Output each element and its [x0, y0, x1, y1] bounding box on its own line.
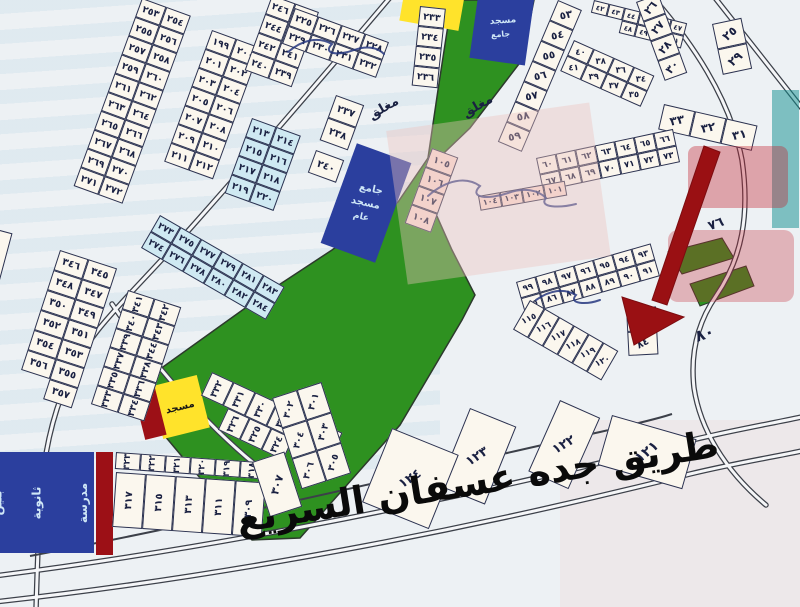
plot-strip-115-120: ١١٥١١٦١١٧١١٨١١٩١٢٠	[513, 300, 618, 380]
mosque-block-top: مسجدجامع	[469, 0, 534, 66]
block-text: بنين	[0, 490, 4, 515]
plot-strip-34-41: ٤٠٣٨٣٦٣٤٤١٣٩٣٧٣٥	[560, 40, 654, 107]
plot-strip-253-272: ٢٥٣٢٥٤٢٥٥٢٥٦٢٥٧٢٥٨٢٥٩٢٦٠٢٦١٢٦٢٢٦٣٢٦٤٢٦٥٢…	[74, 0, 191, 204]
watermark-pink-band	[386, 102, 611, 284]
plot-240: ٢٤٠	[308, 150, 344, 183]
plot-cell: ٢٣٦	[412, 66, 440, 89]
closed-street-label: مغلق	[366, 94, 402, 123]
block-text: ثانوية	[29, 486, 43, 519]
plot-cell: ٣٢٣	[115, 452, 141, 471]
plot-strip-304-306: ٣٠٤٣٠٦	[0, 222, 13, 334]
watermark-red-mark	[668, 230, 794, 302]
watermark-red-mark	[688, 146, 788, 208]
plot-map: طريق جده عسفان السريع ٢٥٣٢٥٤٢٥٥٢٥٦٢٥٧٢٥٨…	[0, 0, 800, 607]
plot-cell: ٢٩	[717, 43, 752, 75]
block-text: مسجد	[489, 15, 516, 27]
plot-cell: ٣٢٠	[190, 457, 216, 476]
block-text: جامع	[358, 181, 384, 197]
plot-cell: ٣١٩	[215, 459, 241, 478]
plot-cell: ٩١	[636, 260, 660, 282]
block-text: مدرسة	[76, 482, 90, 522]
plot-cell: ٢٣٣	[418, 6, 446, 29]
plot-cell: ٣١١	[202, 478, 236, 535]
plot-cell: ٨٤	[627, 330, 658, 356]
plot-cell: ٢٣٤	[416, 26, 444, 49]
mosque-block-top-label: مسجدجامع	[487, 14, 516, 40]
mosque-block-park-label: جامعمسجدعام	[345, 179, 386, 227]
plot-cell: ٣١٣	[172, 476, 206, 533]
plot-strip-83-84: ٨٣٨٤	[626, 306, 658, 356]
school-block-label: مدرسةثانويةبنين	[0, 496, 103, 510]
plot-cell: ٢٤٠	[308, 150, 344, 183]
mosque-block-yellow-label: مسجد	[164, 398, 195, 416]
block-text: مسجد	[350, 195, 381, 212]
block-text: عام	[352, 211, 370, 224]
school-block: مدرسةثانويةبنين	[0, 452, 94, 553]
plot-cell: ٣٢٢	[140, 454, 166, 473]
plot-cell: ٣٠٤	[0, 222, 13, 284]
block-text: جامع	[491, 29, 511, 39]
plot-cell: ٢٣٥	[414, 46, 442, 69]
block-text: مسجد	[164, 398, 195, 416]
plot-strip-213-220: ٢١٣٢١٤٢١٥٢١٦٢١٧٢١٨٢١٩٢٢٠	[225, 118, 301, 211]
plot-cell: ٧٣	[657, 146, 680, 167]
plot-strip-25-29: ٢٥٢٩	[712, 18, 752, 75]
plot-cell: ٣١٥	[142, 474, 176, 531]
plot-cell: ٣١٧	[112, 472, 146, 529]
plot-cell: ٣٢١	[165, 455, 191, 474]
plot-strip-237-238: ٢٣٧٢٣٨	[320, 95, 365, 150]
red-strip-block	[96, 452, 113, 555]
plot-cell: ٨٣	[626, 306, 657, 332]
plot-80-label: ٨٠	[692, 321, 717, 346]
